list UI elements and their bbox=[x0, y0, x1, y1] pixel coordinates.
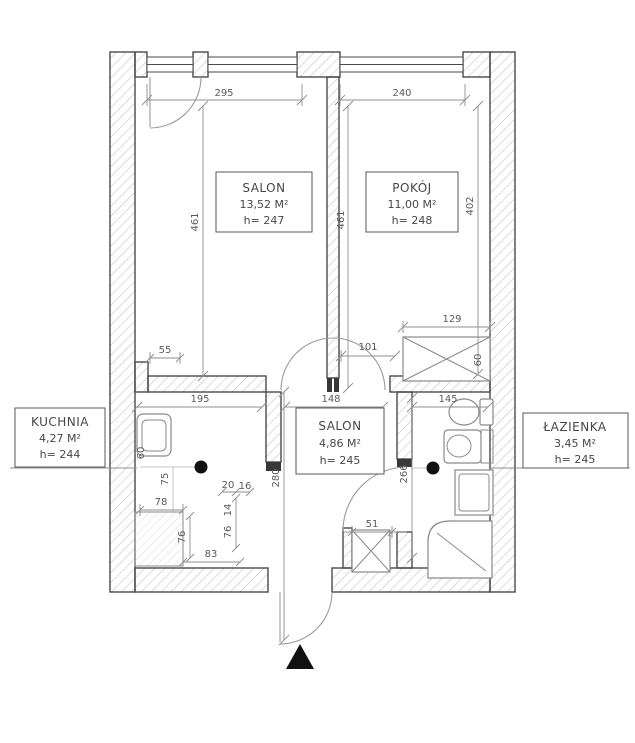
dim-75: 75 bbox=[160, 473, 171, 486]
room-label-salon-height: h= 247 bbox=[244, 214, 285, 227]
dim-76-right: 76 bbox=[223, 526, 234, 539]
ceiling-point-hall bbox=[195, 461, 208, 474]
dim-line-461-left bbox=[198, 101, 208, 381]
room-label-pokoj-height: h= 248 bbox=[392, 214, 433, 227]
room-label-pokoj-area: 11,00 M² bbox=[388, 198, 437, 211]
dim-461-mid: 461 bbox=[336, 210, 347, 229]
room-label-kuchnia-area: 4,27 M² bbox=[39, 432, 81, 445]
room-label-hall-name: SALON bbox=[318, 419, 361, 433]
room-labels: SALON 13,52 M² h= 247 POKÓJ 11,00 M² h= … bbox=[10, 172, 630, 474]
room-label-lazienka-area: 3,45 M² bbox=[554, 437, 596, 450]
dim-83: 83 bbox=[205, 549, 218, 560]
wall-top-pier-d bbox=[463, 52, 490, 77]
room-label-kuchnia: KUCHNIA 4,27 M² h= 244 bbox=[15, 408, 105, 467]
shaft bbox=[352, 530, 390, 572]
washing-machine bbox=[455, 470, 493, 515]
ceiling-point-bath bbox=[427, 462, 440, 475]
wall-top-pier-b bbox=[193, 52, 208, 77]
wall-left bbox=[110, 52, 135, 592]
dim-line-76-right bbox=[232, 494, 240, 552]
wall-stub-left bbox=[135, 362, 148, 392]
toilet-tank bbox=[480, 399, 493, 425]
dim-14: 14 bbox=[223, 504, 234, 517]
room-label-lazienka-name: ŁAZIENKA bbox=[542, 420, 606, 434]
dim-16: 16 bbox=[239, 481, 252, 492]
dim-20: 20 bbox=[222, 480, 235, 491]
wall-shaft-left bbox=[343, 528, 352, 568]
dim-60-sink: 60 bbox=[136, 447, 147, 460]
dim-295: 295 bbox=[214, 88, 233, 99]
entrance-arrow bbox=[286, 644, 314, 669]
dim-78: 78 bbox=[155, 497, 168, 508]
dim-60-wardrobe: 60 bbox=[473, 354, 484, 367]
room-label-lazienka-height: h= 245 bbox=[555, 453, 596, 466]
wall-partition-cap-b bbox=[334, 378, 339, 392]
dim-240: 240 bbox=[392, 88, 411, 99]
wall-kitchen-divider bbox=[266, 392, 281, 462]
room-label-hall: SALON 4,86 M² h= 245 bbox=[296, 408, 384, 474]
dim-55: 55 bbox=[159, 345, 172, 356]
dim-76-left: 76 bbox=[177, 531, 188, 544]
wall-bath-left-upper bbox=[397, 392, 412, 459]
interior-walls bbox=[135, 77, 490, 568]
room-label-salon: SALON 13,52 M² h= 247 bbox=[216, 172, 312, 232]
floor-plan: 295 240 461 461 402 55 195 148 145 101 1… bbox=[0, 0, 635, 743]
room-label-kuchnia-height: h= 244 bbox=[40, 448, 81, 461]
balcony-door-arc bbox=[150, 77, 201, 128]
room-label-salon-area: 13,52 M² bbox=[240, 198, 289, 211]
room-label-pokoj: POKÓJ 11,00 M² h= 248 bbox=[366, 172, 458, 232]
dim-101: 101 bbox=[358, 342, 377, 353]
wall-right bbox=[490, 52, 515, 592]
wall-partition-cap-a bbox=[327, 378, 332, 392]
dim-195: 195 bbox=[190, 394, 209, 405]
dimension-labels: 295 240 461 461 402 55 195 148 145 101 1… bbox=[136, 88, 484, 560]
markers bbox=[140, 461, 440, 670]
kitchen-counter bbox=[135, 512, 183, 566]
washing-machine-body bbox=[455, 470, 493, 515]
room-label-pokoj-name: POKÓJ bbox=[392, 180, 431, 195]
floor-plan-svg: 295 240 461 461 402 55 195 148 145 101 1… bbox=[0, 0, 635, 743]
room-label-hall-height: h= 245 bbox=[320, 454, 361, 467]
dim-148: 148 bbox=[321, 394, 340, 405]
room-label-kuchnia-name: KUCHNIA bbox=[31, 415, 89, 429]
wall-bath-left-lower bbox=[397, 532, 412, 568]
room-label-salon-name: SALON bbox=[242, 181, 285, 195]
wall-kitchen-top bbox=[148, 376, 266, 392]
shower bbox=[428, 521, 492, 578]
dim-129: 129 bbox=[442, 314, 461, 325]
dim-51: 51 bbox=[366, 519, 379, 530]
dim-145: 145 bbox=[438, 394, 457, 405]
dim-402: 402 bbox=[465, 196, 476, 215]
dim-280: 280 bbox=[271, 468, 282, 487]
room-label-lazienka: ŁAZIENKA 3,45 M² h= 245 bbox=[523, 413, 628, 468]
dim-266: 266 bbox=[399, 464, 410, 483]
room-label-hall-area: 4,86 M² bbox=[319, 437, 361, 450]
wall-top-pier-c bbox=[297, 52, 340, 77]
dim-line-461-mid bbox=[343, 101, 353, 393]
bathroom-sink bbox=[444, 430, 493, 463]
wall-top-pier-a bbox=[135, 52, 147, 77]
wall-bottom-left bbox=[135, 568, 268, 592]
shower-tray bbox=[428, 521, 492, 578]
dim-461-left: 461 bbox=[190, 212, 201, 231]
